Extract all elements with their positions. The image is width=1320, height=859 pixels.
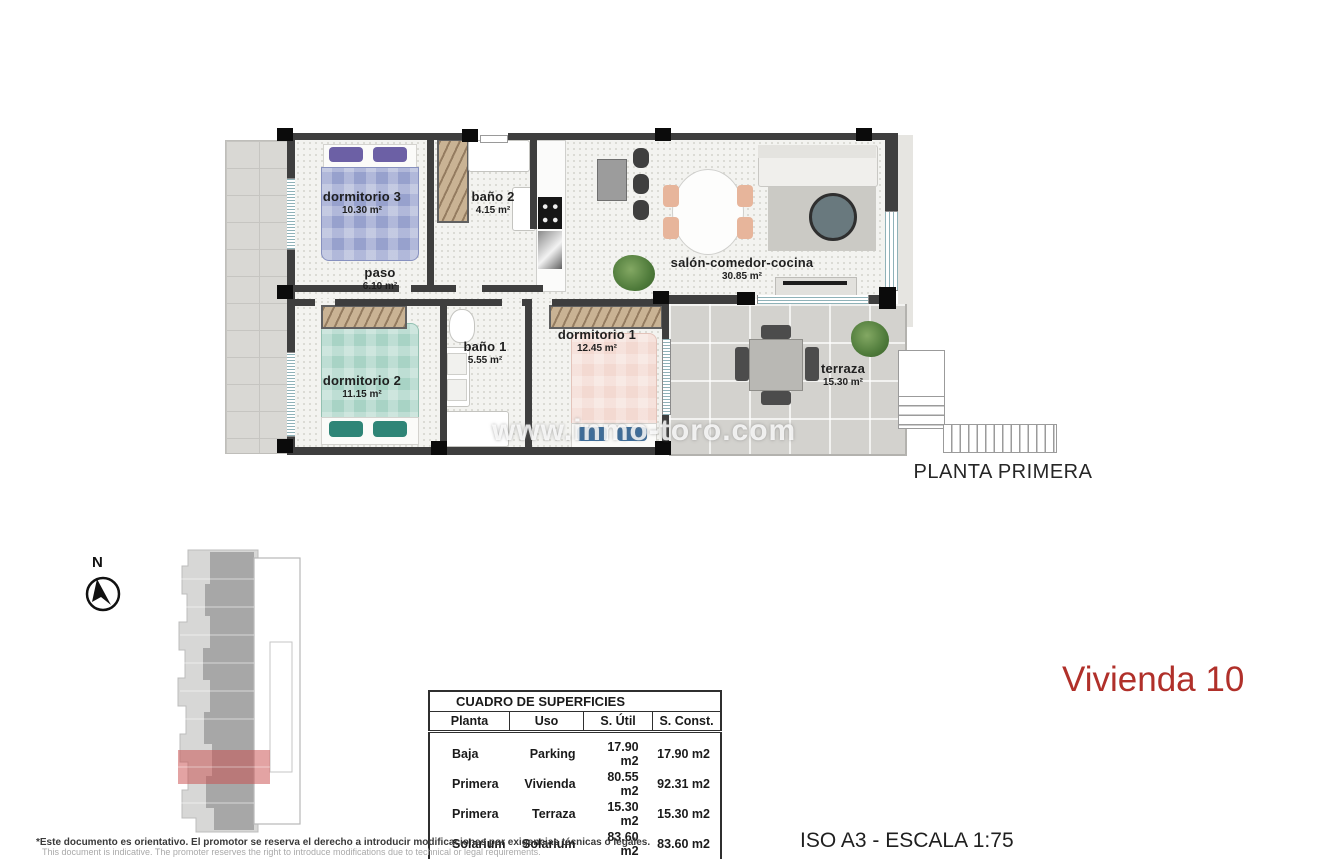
wardrobe-dorm2 [321,305,407,329]
north-label: N [92,554,126,571]
window [287,352,295,437]
dining-chair [663,185,679,207]
bed3-pillow [329,147,363,162]
wall-segment [482,285,543,292]
wall-segment [508,133,892,140]
dining-chair [737,185,753,207]
dining-table [672,169,744,255]
terrace-chair [761,391,791,405]
oven [538,231,562,269]
column-marker [879,287,896,309]
room-label-dormitorio-1: dormitorio 1 12.45 m² [537,327,657,355]
bath1-sink [447,379,467,401]
column-marker [655,128,671,141]
wall-segment [287,299,315,306]
col-header-uso: Uso [510,712,584,732]
wall-segment [440,299,447,454]
wall-segment [281,133,478,140]
kitchen-island [597,159,627,201]
wall-segment [522,299,532,306]
entry-door [480,135,508,143]
room-label-bano-2: baño 2 4.15 m² [443,189,543,217]
scale-note: ISO A3 - ESCALA 1:75 [800,829,1014,853]
north-arrow-icon: N [82,554,126,622]
bath2-tub [468,140,530,172]
stair-run [943,424,1057,453]
column-marker [856,128,872,141]
site-plan [158,546,308,843]
col-header-sutil: S. Útil [584,712,653,732]
terrace-chair [761,325,791,339]
coffee-table [809,193,857,241]
table-row: Baja Parking 17.90 m2 17.90 m2 [429,732,721,770]
bed3-pillow [373,147,407,162]
stair-steps [898,396,945,429]
plan-title: PLANTA PRIMERA [903,461,1103,484]
window [885,211,898,291]
window [287,178,295,250]
wall-segment [335,299,440,306]
wardrobe-dorm1 [549,305,663,329]
dining-chair [663,217,679,239]
column-marker [462,129,478,142]
room-label-dormitorio-3: dormitorio 3 10.30 m² [302,189,422,217]
bed2-pillow [373,421,407,437]
column-marker [277,285,293,299]
wall-segment [552,299,665,306]
window [662,339,671,415]
sliding-glass-door [757,295,869,304]
plan-sheet: dormitorio 3 10.30 m² baño 2 4.15 m² pas… [0,0,1320,859]
bar-stool [633,200,649,220]
exterior-shadow [898,135,913,327]
bed2-pillow [329,421,363,437]
plant-icon [851,321,889,357]
disclaimer: *Este documento es orientativo. El promo… [36,837,650,858]
wall-segment [885,133,898,211]
room-label-terraza: terraza 15.30 m² [793,361,893,389]
siteplan-right-wing [254,558,300,824]
bath1-toilet [449,309,475,343]
wall-segment [662,299,669,339]
room-label-salon: salón-comedor-cocina 30.85 m² [652,255,832,283]
room-label-paso: paso 6.10 m² [330,265,430,293]
floor-plan: dormitorio 3 10.30 m² baño 2 4.15 m² pas… [225,127,1057,462]
surfaces-table: CUADRO DE SUPERFICIES Planta Uso S. Útil… [428,690,722,859]
plant-icon [613,255,655,291]
wall-segment [669,295,739,304]
room-label-bano-1: baño 1 5.55 m² [430,339,540,367]
dining-chair [737,217,753,239]
surfaces-table-title: CUADRO DE SUPERFICIES [429,691,721,712]
wall-segment [440,299,502,306]
col-header-sconst: S. Const. [653,712,721,732]
room-label-dormitorio-2: dormitorio 2 11.15 m² [302,373,422,401]
column-marker [653,291,669,304]
disclaimer-en: This document is indicative. The promote… [36,848,650,858]
table-row: Primera Terraza 15.30 m2 15.30 m2 [429,799,721,829]
wall-segment [434,285,456,292]
sofa-back [758,145,876,158]
column-marker [431,441,447,455]
bar-stool [633,148,649,168]
terrace-chair [735,347,749,381]
column-marker [737,292,755,305]
compass-glyph [82,571,126,617]
col-header-planta: Planta [429,712,510,732]
column-marker [277,439,293,453]
unit-title: Vivienda 10 [1062,660,1244,700]
bar-stool [633,174,649,194]
column-marker [277,128,293,141]
stair-landing [898,350,945,398]
table-row: Primera Vivienda 80.55 m2 92.31 m2 [429,769,721,799]
wall-segment [287,447,669,455]
watermark: www.inmo-toro.com [492,414,802,448]
